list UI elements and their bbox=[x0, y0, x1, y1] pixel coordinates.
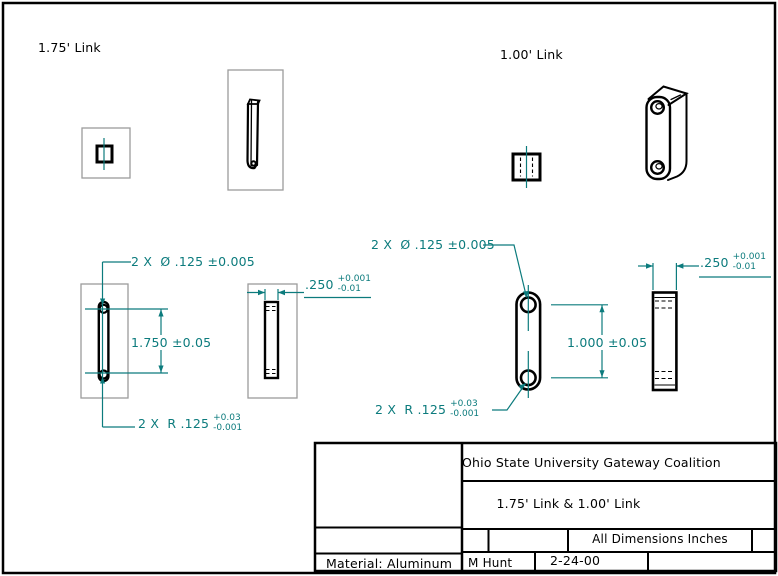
dim-radius-right-value: 2 X R .125 bbox=[375, 402, 446, 417]
dim-width-left-tolerance: +0.001 -0.01 bbox=[338, 275, 371, 295]
dim-width-right-value: .250 bbox=[700, 255, 729, 270]
dim-radius-left: 2 X R .125 +0.03 -0.001 bbox=[138, 414, 242, 434]
title-block-author: M Hunt bbox=[468, 556, 512, 570]
drawing-geometry bbox=[0, 0, 778, 576]
dim-width-right-tolerance: +0.001 -0.01 bbox=[733, 253, 766, 273]
engineering-drawing-sheet: 1.75' Link 1.00' Link 2 X Ø .125 ±0.005 … bbox=[0, 0, 778, 576]
link-175-isometric-view bbox=[248, 100, 260, 169]
link-100-isometric-view bbox=[647, 87, 687, 181]
title-block-units-note: All Dimensions Inches bbox=[568, 532, 752, 546]
title-block-company: Ohio State University Gateway Coalition bbox=[462, 455, 702, 470]
dim-width-left: .250 +0.001 -0.01 bbox=[305, 275, 371, 295]
dim-radius-left-value: 2 X R .125 bbox=[138, 416, 209, 431]
dim-width-left-value: .250 bbox=[305, 277, 334, 292]
title-block-material: Material: Aluminum bbox=[326, 556, 452, 571]
title-block-date: 2-24-00 bbox=[550, 553, 600, 568]
link-175-front-view bbox=[99, 302, 109, 381]
dim-radius-left-tolerance: +0.03 -0.001 bbox=[213, 414, 242, 434]
dim-holes-right: 2 X Ø .125 ±0.005 bbox=[371, 237, 495, 252]
label-link-100: 1.00' Link bbox=[500, 47, 563, 62]
title-block-drawing-title: 1.75' Link & 1.00' Link bbox=[462, 496, 675, 511]
link-175-side-view bbox=[265, 302, 278, 378]
dim-radius-right-tolerance: +0.03 -0.001 bbox=[450, 400, 479, 420]
sheet-border bbox=[3, 3, 775, 573]
dim-length-left: 1.750 ±0.05 bbox=[129, 335, 213, 350]
link-100-side-view bbox=[653, 293, 676, 391]
dim-holes-left: 2 X Ø .125 ±0.005 bbox=[131, 254, 255, 269]
dim-radius-right: 2 X R .125 +0.03 -0.001 bbox=[375, 400, 479, 420]
label-link-175: 1.75' Link bbox=[38, 40, 101, 55]
dim-width-right: .250 +0.001 -0.01 bbox=[700, 253, 766, 273]
dim-length-right: 1.000 ±0.05 bbox=[565, 335, 649, 350]
